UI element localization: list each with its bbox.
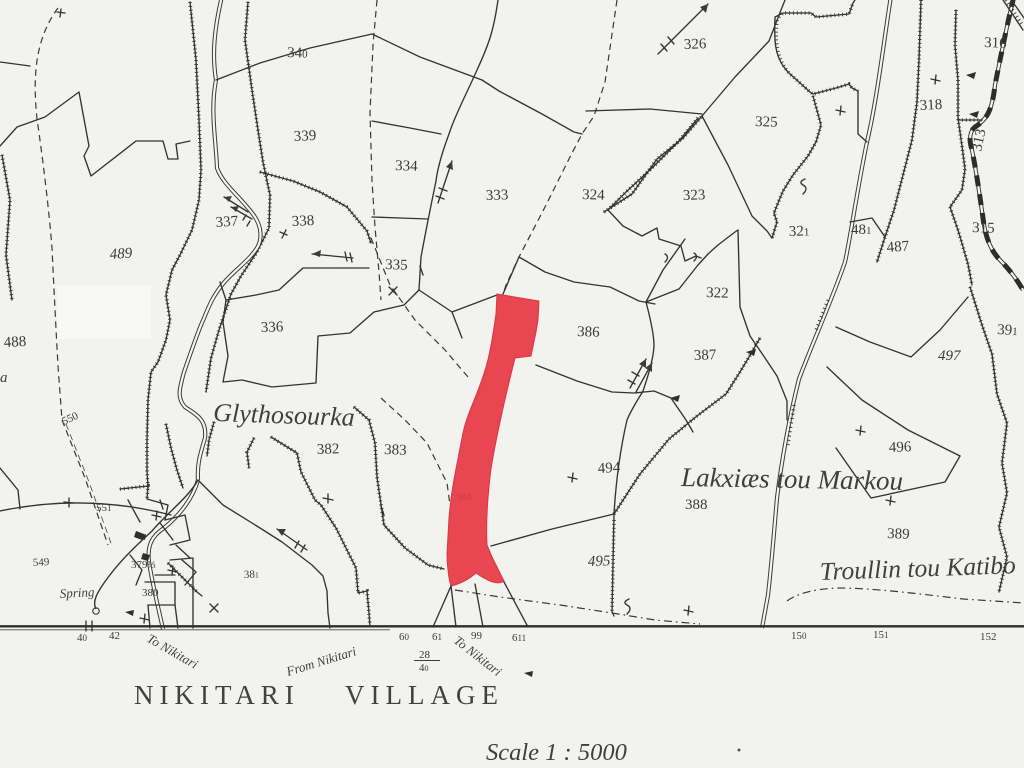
- svg-text:494: 494: [597, 460, 621, 477]
- svg-text:334: 334: [395, 158, 419, 175]
- svg-text:150: 150: [791, 630, 807, 642]
- svg-text:Scale 1 : 5000: Scale 1 : 5000: [486, 739, 627, 766]
- svg-text:383: 383: [384, 442, 407, 459]
- svg-text:324: 324: [582, 187, 606, 204]
- svg-text:321: 321: [789, 223, 810, 240]
- svg-text:381: 381: [244, 568, 259, 581]
- svg-text:386: 386: [577, 324, 601, 341]
- svg-text:496: 496: [889, 439, 913, 456]
- svg-text:488: 488: [3, 334, 26, 351]
- svg-text:339: 339: [293, 128, 316, 145]
- svg-text:497: 497: [938, 348, 962, 364]
- svg-text:NIKITARI: NIKITARI: [134, 680, 300, 710]
- svg-text:151: 151: [873, 629, 889, 641]
- svg-text:99: 99: [471, 630, 483, 642]
- svg-text:382: 382: [317, 441, 340, 458]
- svg-text:338: 338: [291, 213, 314, 230]
- svg-text:40: 40: [77, 632, 88, 644]
- svg-text:379⅓: 379⅓: [131, 559, 156, 571]
- svg-text:VILLAGE: VILLAGE: [345, 680, 504, 710]
- svg-text:389: 389: [887, 526, 910, 543]
- svg-text:323: 323: [683, 187, 706, 204]
- svg-text:380: 380: [142, 587, 159, 599]
- svg-text:Spring: Spring: [59, 584, 95, 601]
- svg-text:489: 489: [109, 245, 133, 263]
- svg-text:322: 322: [706, 285, 729, 302]
- svg-text:315: 315: [972, 220, 995, 237]
- svg-text:551: 551: [96, 502, 112, 514]
- svg-text:40: 40: [419, 662, 429, 674]
- svg-text:495: 495: [588, 553, 612, 570]
- svg-text:387: 387: [694, 347, 718, 364]
- svg-text:549: 549: [33, 556, 51, 569]
- svg-text:61: 61: [432, 631, 442, 643]
- svg-text:335: 335: [385, 257, 408, 274]
- svg-text:316: 316: [984, 35, 1008, 52]
- svg-text:318: 318: [919, 97, 942, 114]
- svg-text:333: 333: [486, 187, 509, 204]
- svg-text:Glythosourka: Glythosourka: [213, 398, 355, 432]
- svg-text:487: 487: [886, 238, 910, 256]
- svg-text:481: 481: [851, 222, 872, 238]
- svg-text:60: 60: [399, 631, 410, 643]
- svg-text:384: 384: [456, 491, 472, 504]
- svg-text:388: 388: [685, 497, 708, 513]
- svg-text:28: 28: [419, 649, 431, 661]
- svg-text:152: 152: [980, 631, 997, 643]
- svg-text:325: 325: [755, 114, 778, 131]
- svg-text:611: 611: [512, 632, 526, 644]
- svg-text:a: a: [0, 370, 8, 386]
- svg-text:337: 337: [215, 213, 239, 231]
- svg-text:Lakxiæs tou Markou: Lakxiæs tou Markou: [680, 462, 903, 496]
- svg-text:42: 42: [109, 630, 120, 642]
- svg-text:336: 336: [261, 319, 285, 336]
- svg-text:326: 326: [684, 36, 708, 53]
